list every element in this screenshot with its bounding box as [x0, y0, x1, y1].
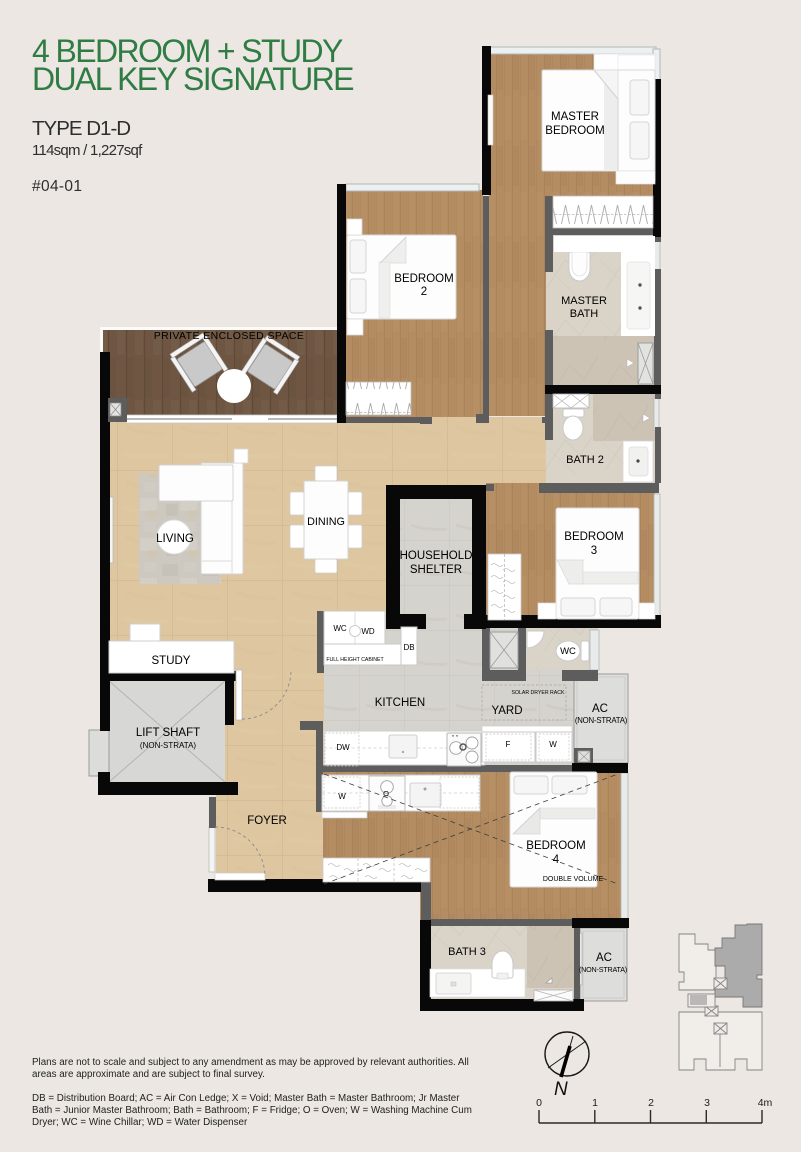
svg-text:BEDROOM: BEDROOM [545, 125, 604, 137]
svg-text:BEDROOM: BEDROOM [394, 273, 453, 285]
svg-text:O: O [383, 789, 389, 798]
svg-text:AC: AC [596, 952, 612, 964]
svg-text:SOLAR DRYER RACK: SOLAR DRYER RACK [512, 690, 565, 696]
svg-text:WC: WC [560, 646, 576, 657]
svg-text:BATH 2: BATH 2 [566, 454, 604, 466]
svg-text:W: W [338, 792, 346, 801]
svg-text:MASTER: MASTER [551, 111, 599, 123]
svg-text:BATH: BATH [570, 308, 599, 320]
svg-text:BEDROOM: BEDROOM [564, 531, 623, 543]
svg-text:LIFT SHAFT: LIFT SHAFT [136, 727, 200, 739]
svg-text:Plans are not to scale and sub: Plans are not to scale and subject to an… [32, 1057, 469, 1068]
svg-text:KITCHEN: KITCHEN [375, 697, 425, 709]
svg-text:TYPE D1-D: TYPE D1-D [32, 117, 130, 140]
svg-text:PRIVATE ENCLOSED SPACE: PRIVATE ENCLOSED SPACE [154, 330, 305, 342]
svg-text:DW: DW [336, 743, 350, 752]
svg-text:4m: 4m [758, 1097, 773, 1109]
svg-text:1: 1 [592, 1097, 598, 1109]
svg-text:2: 2 [648, 1097, 654, 1109]
svg-text:3: 3 [704, 1097, 710, 1109]
svg-text:2: 2 [421, 286, 427, 298]
svg-text:HOUSEHOLD: HOUSEHOLD [400, 550, 473, 562]
svg-text:FOYER: FOYER [247, 815, 287, 827]
svg-text:YARD: YARD [491, 705, 522, 717]
svg-text:#04-01: #04-01 [32, 178, 82, 195]
svg-text:Bath = Junior Master Bathroom;: Bath = Junior Master Bathroom; Bath = Ba… [32, 1105, 472, 1116]
svg-text:WC: WC [333, 624, 347, 633]
svg-text:0: 0 [536, 1097, 542, 1109]
svg-text:AC: AC [592, 703, 608, 715]
svg-text:(NON-STRATA): (NON-STRATA) [579, 965, 627, 974]
svg-text:DOUBLE VOLUME: DOUBLE VOLUME [543, 876, 604, 883]
svg-text:W: W [549, 740, 557, 749]
svg-text:BATH 3: BATH 3 [448, 946, 486, 958]
svg-text:FULL HEIGHT CABINET: FULL HEIGHT CABINET [326, 657, 384, 663]
svg-text:WD: WD [361, 627, 375, 636]
svg-text:N: N [554, 1079, 568, 1100]
svg-text:STUDY: STUDY [152, 655, 191, 667]
svg-text:(NON-STRATA): (NON-STRATA) [140, 741, 196, 750]
svg-text:3: 3 [591, 545, 597, 557]
svg-text:areas are approximate and are: areas are approximate and are subject to… [32, 1069, 265, 1080]
svg-text:DINING: DINING [307, 516, 345, 528]
svg-text:4: 4 [553, 854, 560, 866]
svg-text:LIVING: LIVING [156, 533, 194, 545]
svg-text:Dryer; WC = Wine Chillar; WD =: Dryer; WC = Wine Chillar; WD = Water Dis… [32, 1117, 248, 1128]
svg-text:(NON-STRATA): (NON-STRATA) [575, 716, 628, 725]
svg-text:DB = Distribution Board; AC =: DB = Distribution Board; AC = Air Con Le… [32, 1093, 460, 1104]
svg-text:BEDROOM: BEDROOM [526, 840, 585, 852]
svg-text:DB: DB [403, 643, 414, 652]
svg-text:DUAL KEY SIGNATURE: DUAL KEY SIGNATURE [32, 61, 353, 97]
svg-text:F: F [506, 740, 511, 749]
svg-text:SHELTER: SHELTER [410, 564, 462, 576]
svg-text:MASTER: MASTER [561, 295, 607, 307]
svg-text:114sqm / 1,227sqf: 114sqm / 1,227sqf [32, 142, 143, 159]
